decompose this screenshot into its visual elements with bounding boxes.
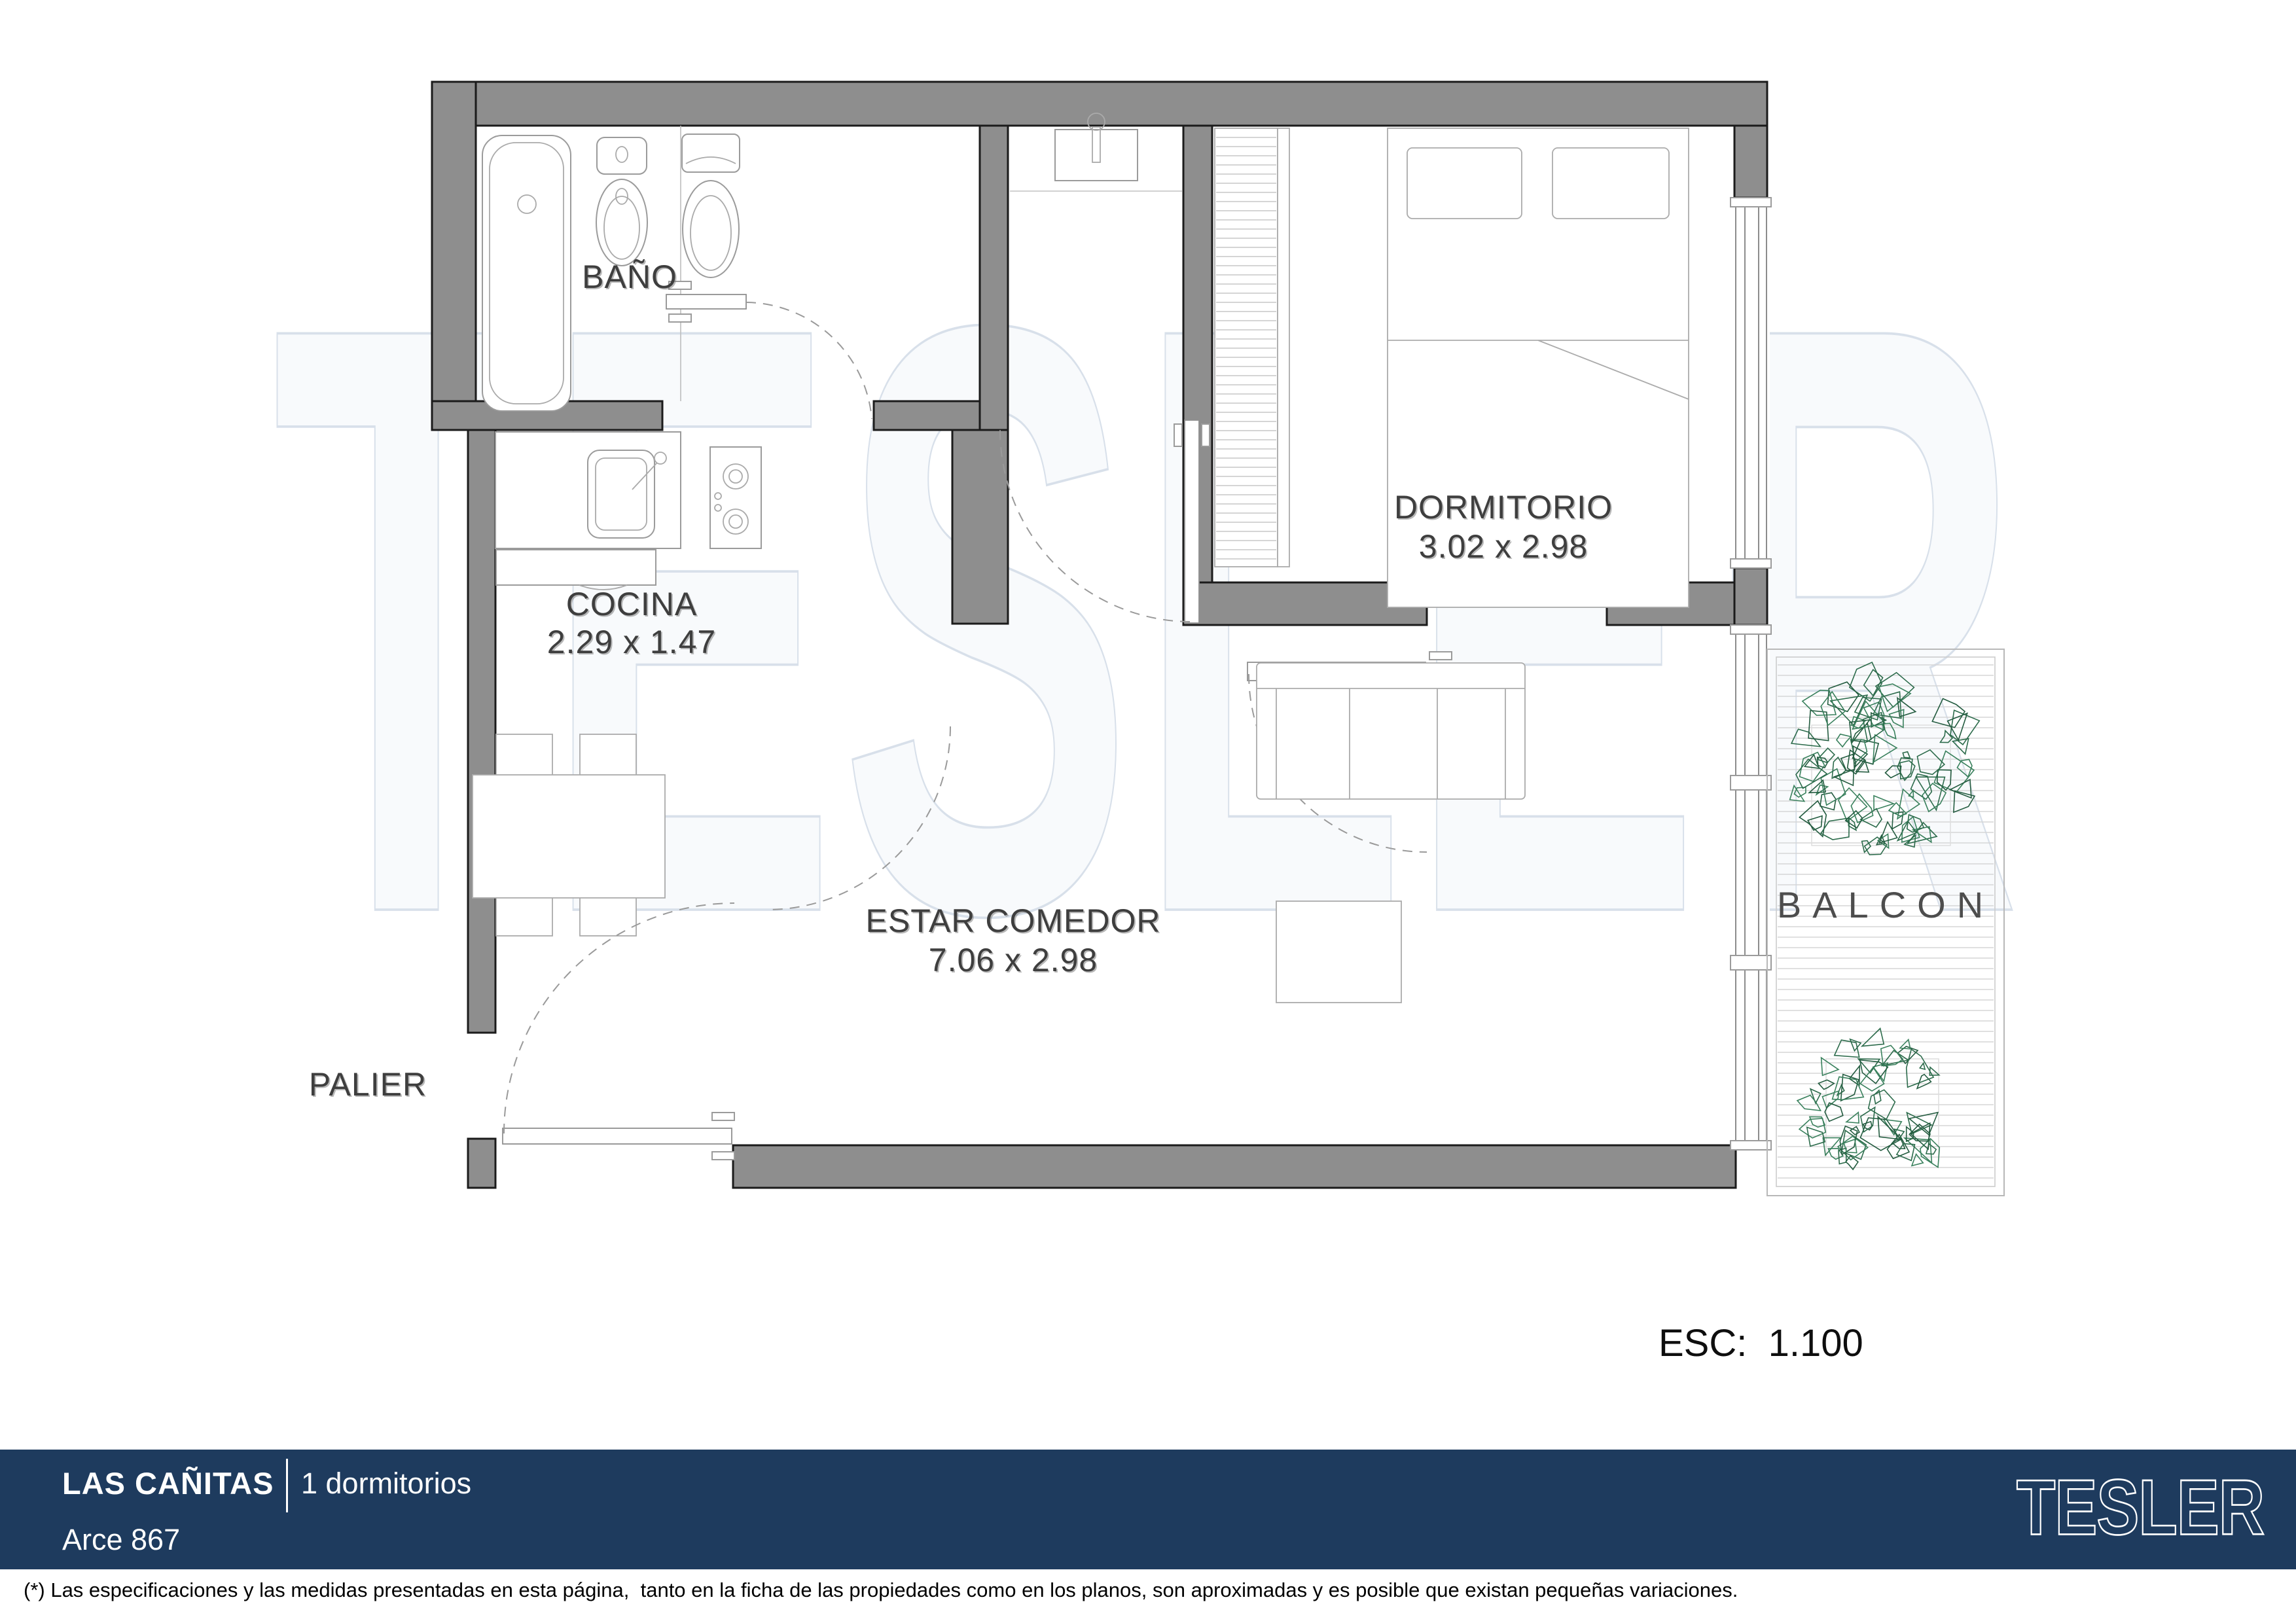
- coffee-table: [1276, 901, 1401, 1003]
- label-estar: ESTAR COMEDOR: [866, 902, 1161, 939]
- typology-label: 1 dormitorios: [301, 1467, 471, 1501]
- bidet-icon: [596, 137, 647, 266]
- label-palier: PALIER: [309, 1066, 427, 1103]
- kitchen-sink-icon: [588, 450, 666, 538]
- disclaimer-text: (*) Las especificaciones y las medidas p…: [24, 1578, 1738, 1602]
- esc-scale-label: ESC: 1.100: [1659, 1322, 1863, 1364]
- bedroom-window: [1731, 198, 1771, 568]
- cooktop-icon: [710, 447, 761, 548]
- tesler-logo-text: TESLER: [2017, 1464, 2264, 1552]
- tesler-logo: TESLER: [2009, 1461, 2271, 1553]
- footer-divider: [286, 1459, 288, 1512]
- toilet-icon: [682, 134, 740, 277]
- label-estar-dims: 7.06 x 2.98: [929, 942, 1098, 978]
- label-dormitorio-dims: 3.02 x 2.98: [1419, 528, 1588, 565]
- floor-plan: TESLER: [0, 0, 2296, 1450]
- label-cocina-dims: 2.29 x 1.47: [547, 624, 716, 660]
- label-bano: BAÑO: [582, 259, 677, 295]
- label-balcon: BALCON: [1777, 884, 1994, 925]
- closet: [1215, 128, 1289, 567]
- project-name: LAS CAÑITAS: [62, 1465, 274, 1501]
- label-dormitorio: DORMITORIO: [1394, 489, 1613, 526]
- label-cocina: COCINA: [566, 586, 697, 622]
- sofa: [1257, 663, 1525, 799]
- bathtub-icon: [482, 135, 571, 411]
- address-label: Arce 867: [62, 1523, 180, 1557]
- balcony-sliding-window: [1731, 625, 1771, 1150]
- footer-bar: LAS CAÑITAS 1 dormitorios Arce 867 TESLE…: [0, 1450, 2296, 1569]
- kitchen-lower-cabinet: [496, 550, 656, 590]
